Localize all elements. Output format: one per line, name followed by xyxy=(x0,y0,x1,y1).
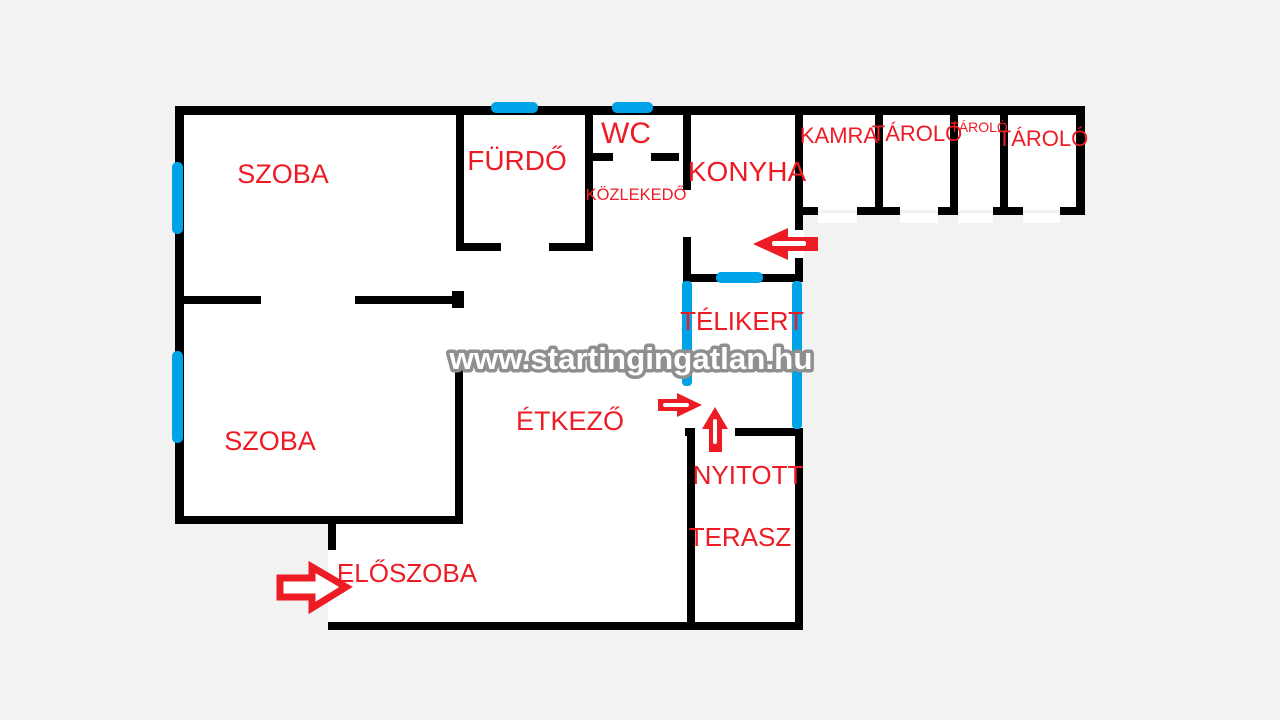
konyha-arrow-stripe xyxy=(772,241,806,246)
wall-terasz-top xyxy=(735,428,803,436)
door-gap-tarolo-2 xyxy=(958,213,993,223)
watermark: www.startingingatlan.hu xyxy=(448,341,812,376)
room-label-konyha: KONYHA xyxy=(688,156,807,187)
door-gap-kamra xyxy=(818,213,857,223)
wall-strip-bottom-3 xyxy=(938,207,958,215)
wall-strip-right xyxy=(1076,106,1085,215)
wall-mid-right xyxy=(355,296,463,304)
wall-strip-bottom-5 xyxy=(1060,207,1085,215)
window-szoba-top xyxy=(172,162,183,234)
terasz-arrow-stripe xyxy=(713,419,717,444)
wall-eloszoba-left xyxy=(328,518,336,550)
wall-mid-endcap xyxy=(452,291,464,308)
room-label-etkezo: ÉTKEZŐ xyxy=(516,405,624,436)
wall-konyha-bottom-left xyxy=(683,274,719,282)
wall-szoba-right xyxy=(455,368,463,524)
wall-mid-left xyxy=(175,296,261,304)
floor-plan-canvas: SZOBA FÜRDŐ WC KÖZLEKEDŐ KONYHA KAMRA TÁ… xyxy=(0,0,1280,720)
window-szoba-bottom xyxy=(172,351,183,443)
window-konyha-telikert xyxy=(716,272,763,283)
room-label-szoba-top: SZOBA xyxy=(237,159,329,189)
room-label-szoba-bottom: SZOBA xyxy=(224,426,316,456)
room-label-wc: WC xyxy=(601,117,651,150)
wall-furdo-left xyxy=(456,106,464,251)
room-label-kozlekedo: KÖZLEKEDŐ xyxy=(586,185,687,204)
room-label-kamra: KAMRA xyxy=(800,123,879,148)
room-label-furdo: FÜRDŐ xyxy=(467,145,567,176)
etkezo-arrow-stripe xyxy=(663,403,689,407)
window-wc xyxy=(612,102,653,113)
wall-strip-bottom-1 xyxy=(795,207,818,215)
wall-bottom xyxy=(328,622,803,630)
room-label-nyitott: NYITOTT xyxy=(693,460,804,490)
floor-plan-drawing: SZOBA FÜRDŐ WC KÖZLEKEDŐ KONYHA KAMRA TÁ… xyxy=(0,0,1280,720)
window-furdo xyxy=(491,102,538,113)
room-label-tarolo-1: TÁROLÓ xyxy=(872,121,962,146)
wall-strip-bottom-2 xyxy=(857,207,900,215)
wall-furdo-right xyxy=(585,106,593,251)
wall-furdo-bottom-left xyxy=(456,243,501,251)
door-gap-tarolo-3 xyxy=(1023,213,1060,223)
wall-wc-bottom-right xyxy=(651,153,679,161)
wall-szoba-bottom xyxy=(175,516,463,524)
door-gap-tarolo-1 xyxy=(900,213,938,223)
wall-furdo-bottom-right xyxy=(549,243,591,251)
room-label-terasz: TERASZ xyxy=(689,522,792,552)
room-label-telikert: TÉLIKERT xyxy=(680,306,804,336)
wall-house-right-lower xyxy=(795,428,803,630)
room-label-tarolo-3: TÁROLÓ xyxy=(998,126,1088,151)
room-label-eloszoba: ELŐSZOBA xyxy=(337,558,478,588)
wall-wc-bottom-left xyxy=(585,153,613,161)
wall-konyha-right-lower xyxy=(795,258,803,282)
wall-strip-bottom-4 xyxy=(993,207,1023,215)
